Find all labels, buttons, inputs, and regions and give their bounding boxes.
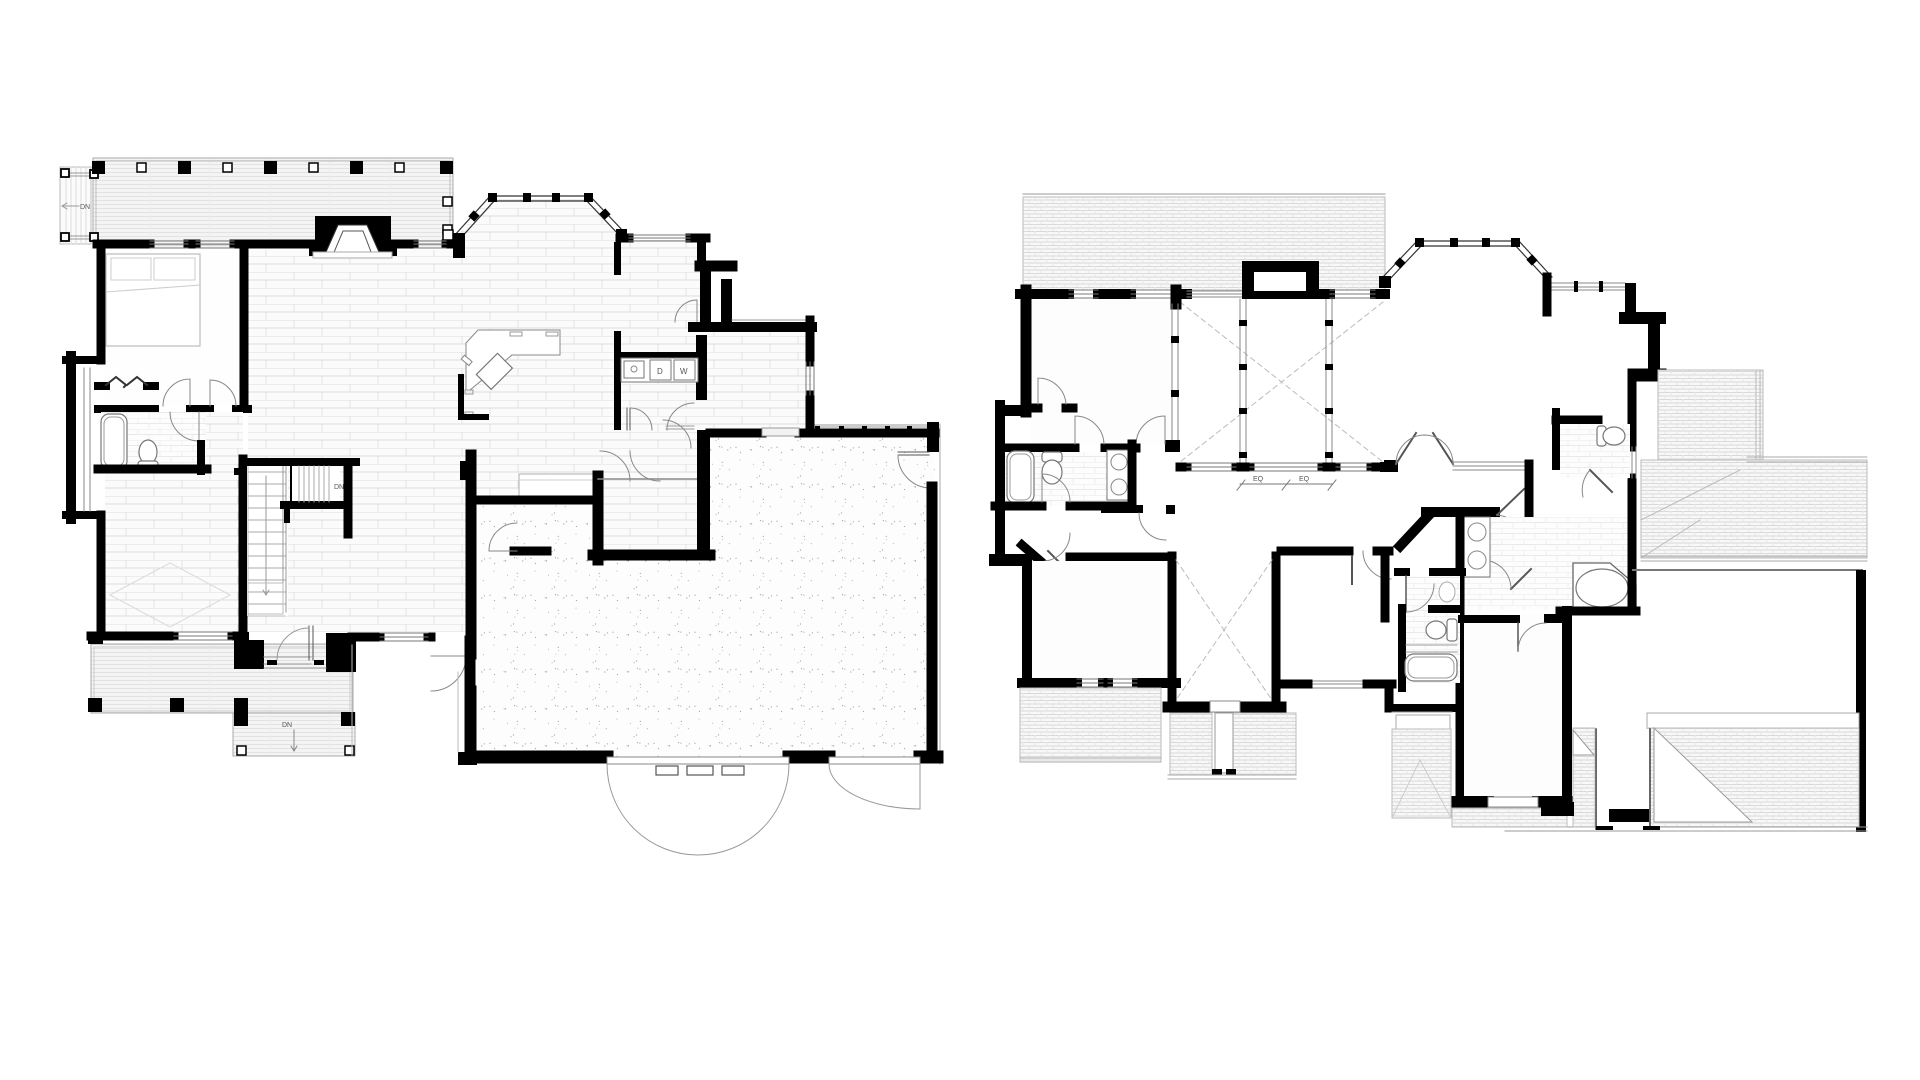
svg-text:W: W: [680, 367, 688, 376]
svg-text:DN: DN: [334, 484, 344, 491]
svg-text:DN: DN: [282, 722, 292, 729]
svg-text:DN: DN: [80, 204, 90, 211]
svg-text:EQ: EQ: [1299, 476, 1310, 483]
svg-text:D: D: [657, 367, 663, 376]
svg-text:EQ: EQ: [1253, 476, 1264, 483]
